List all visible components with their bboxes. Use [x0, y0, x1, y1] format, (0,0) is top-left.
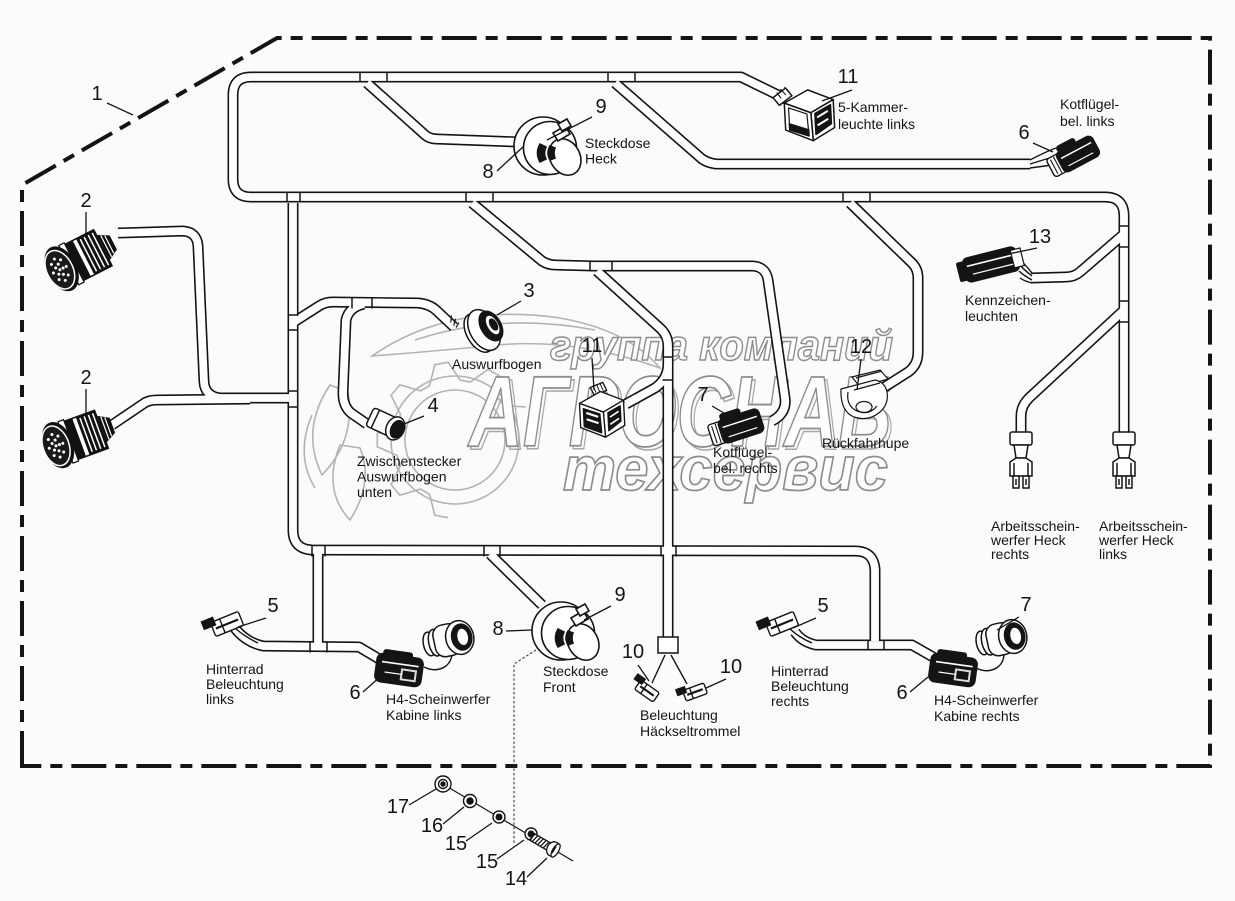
svg-text:7: 7: [1020, 594, 1031, 616]
svg-text:Rückfahrhupe: Rückfahrhupe: [822, 435, 909, 451]
svg-text:5: 5: [267, 595, 278, 617]
svg-text:Hinterrad: Hinterrad: [206, 661, 264, 677]
svg-text:15: 15: [445, 833, 467, 855]
svg-text:links: links: [206, 691, 234, 707]
svg-text:2: 2: [80, 190, 91, 212]
svg-text:2: 2: [80, 367, 91, 389]
svg-text:links: links: [1099, 546, 1127, 562]
svg-text:13: 13: [1029, 226, 1051, 248]
svg-text:6: 6: [896, 682, 907, 704]
svg-text:Beleuchtung: Beleuchtung: [771, 678, 849, 694]
svg-text:1: 1: [91, 83, 102, 105]
svg-text:6: 6: [349, 682, 360, 704]
svg-text:17: 17: [387, 796, 409, 818]
svg-text:12: 12: [850, 336, 872, 358]
svg-text:8: 8: [492, 618, 503, 640]
svg-text:Zwischenstecker: Zwischenstecker: [357, 453, 462, 469]
svg-text:10: 10: [720, 656, 742, 678]
svg-text:Hinterrad: Hinterrad: [771, 663, 829, 679]
svg-text:Häckseltrommel: Häckseltrommel: [640, 723, 740, 739]
svg-text:Steckdose: Steckdose: [543, 663, 609, 679]
svg-text:Kabine rechts: Kabine rechts: [934, 708, 1020, 724]
svg-text:5: 5: [817, 595, 828, 617]
svg-text:7: 7: [697, 384, 708, 406]
svg-text:H4-Scheinwerfer: H4-Scheinwerfer: [386, 691, 491, 707]
svg-text:Kotflügel-: Kotflügel-: [713, 444, 772, 460]
svg-text:Auswurfbogen: Auswurfbogen: [357, 469, 447, 485]
svg-text:Front: Front: [543, 679, 576, 695]
svg-text:3: 3: [523, 280, 534, 302]
svg-text:Auswurfbogen: Auswurfbogen: [452, 356, 542, 372]
svg-text:rechts: rechts: [991, 546, 1029, 562]
svg-text:9: 9: [614, 584, 625, 606]
svg-text:14: 14: [505, 868, 527, 890]
svg-text:11: 11: [582, 335, 603, 357]
svg-text:Beleuchtung: Beleuchtung: [206, 676, 284, 692]
svg-text:rechts: rechts: [771, 693, 809, 709]
svg-text:Kabine links: Kabine links: [386, 707, 462, 723]
svg-text:10: 10: [622, 641, 644, 663]
svg-text:9: 9: [595, 96, 606, 118]
svg-text:H4-Scheinwerfer: H4-Scheinwerfer: [934, 692, 1039, 708]
svg-text:15: 15: [476, 851, 498, 873]
svg-text:Kotflügel-: Kotflügel-: [1060, 96, 1119, 112]
svg-text:Heck: Heck: [585, 151, 618, 167]
svg-text:Beleuchtung: Beleuchtung: [640, 707, 718, 723]
svg-text:unten: unten: [357, 484, 392, 500]
svg-text:4: 4: [427, 395, 438, 417]
svg-text:leuchte links: leuchte links: [838, 116, 915, 132]
svg-text:leuchten: leuchten: [965, 308, 1018, 324]
svg-text:Kennzeichen-: Kennzeichen-: [965, 292, 1051, 308]
svg-text:11: 11: [838, 66, 859, 88]
svg-text:bel. rechts: bel. rechts: [713, 460, 778, 476]
svg-text:Steckdose: Steckdose: [585, 135, 651, 151]
svg-text:6: 6: [1018, 122, 1029, 144]
svg-text:16: 16: [421, 815, 443, 837]
svg-text:8: 8: [482, 161, 493, 183]
svg-text:bel. links: bel. links: [1060, 113, 1114, 129]
svg-text:5-Kammer-: 5-Kammer-: [838, 99, 908, 115]
